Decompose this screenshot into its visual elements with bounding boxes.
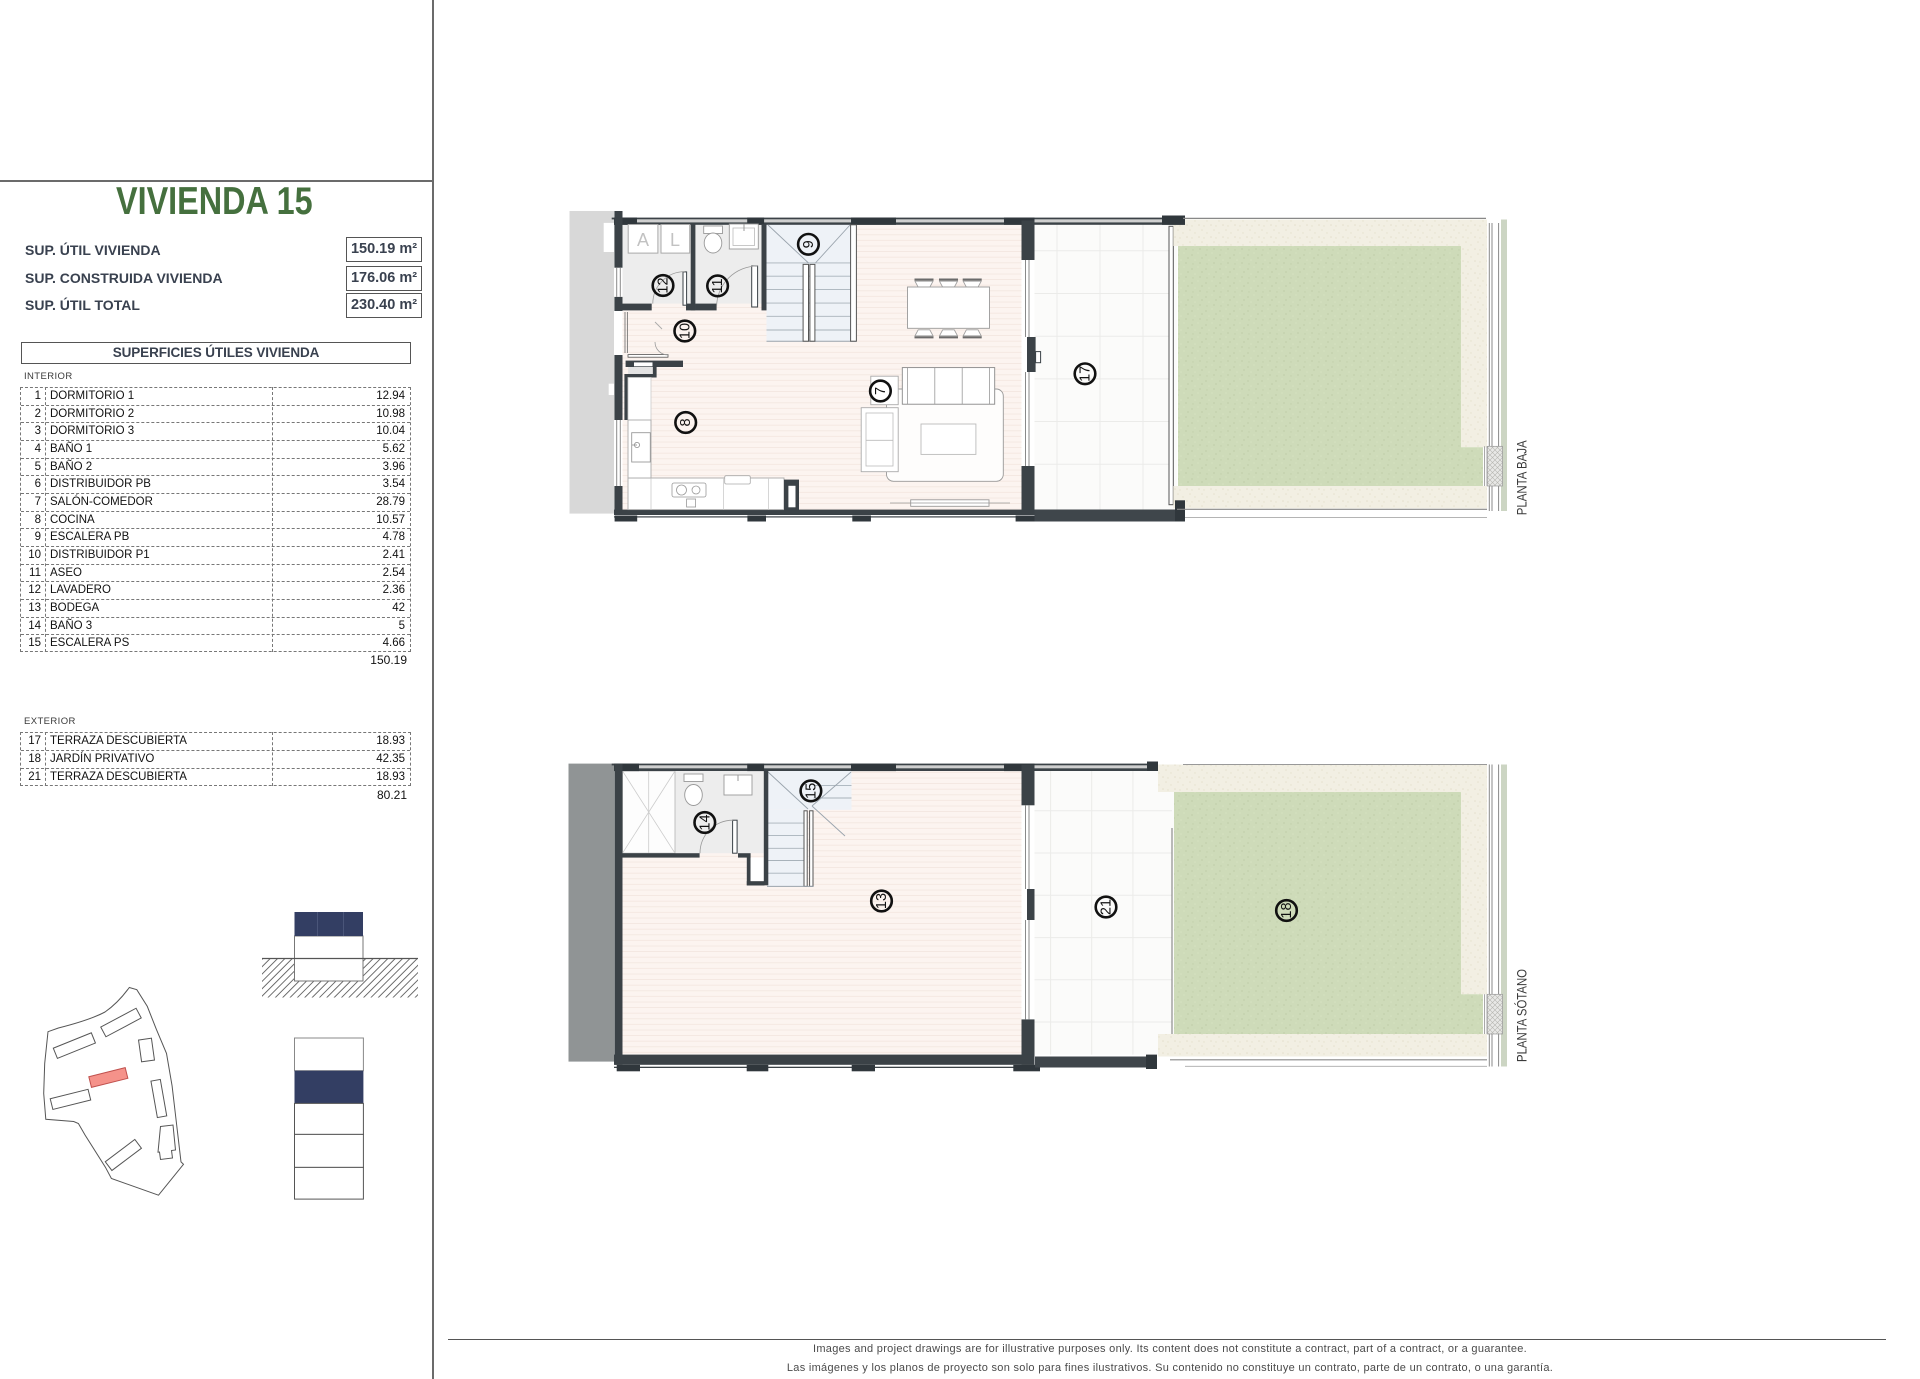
svg-text:13: 13: [874, 893, 890, 909]
svg-text:PLANTA BAJA: PLANTA BAJA: [1514, 440, 1530, 516]
svg-text:L: L: [670, 230, 680, 250]
svg-text:17: 17: [1078, 366, 1094, 382]
svg-text:21: 21: [1099, 899, 1115, 915]
svg-text:11: 11: [710, 278, 726, 293]
svg-text:9: 9: [801, 240, 817, 248]
svg-text:7: 7: [873, 387, 889, 395]
svg-text:10: 10: [677, 323, 693, 339]
svg-text:15: 15: [803, 783, 819, 799]
svg-text:A: A: [637, 230, 649, 250]
svg-text:18: 18: [1279, 902, 1295, 918]
svg-text:8: 8: [678, 418, 694, 426]
svg-text:PLANTA SÓTANO: PLANTA SÓTANO: [1514, 969, 1530, 1062]
svg-text:14: 14: [697, 814, 713, 830]
svg-text:12: 12: [656, 277, 672, 293]
